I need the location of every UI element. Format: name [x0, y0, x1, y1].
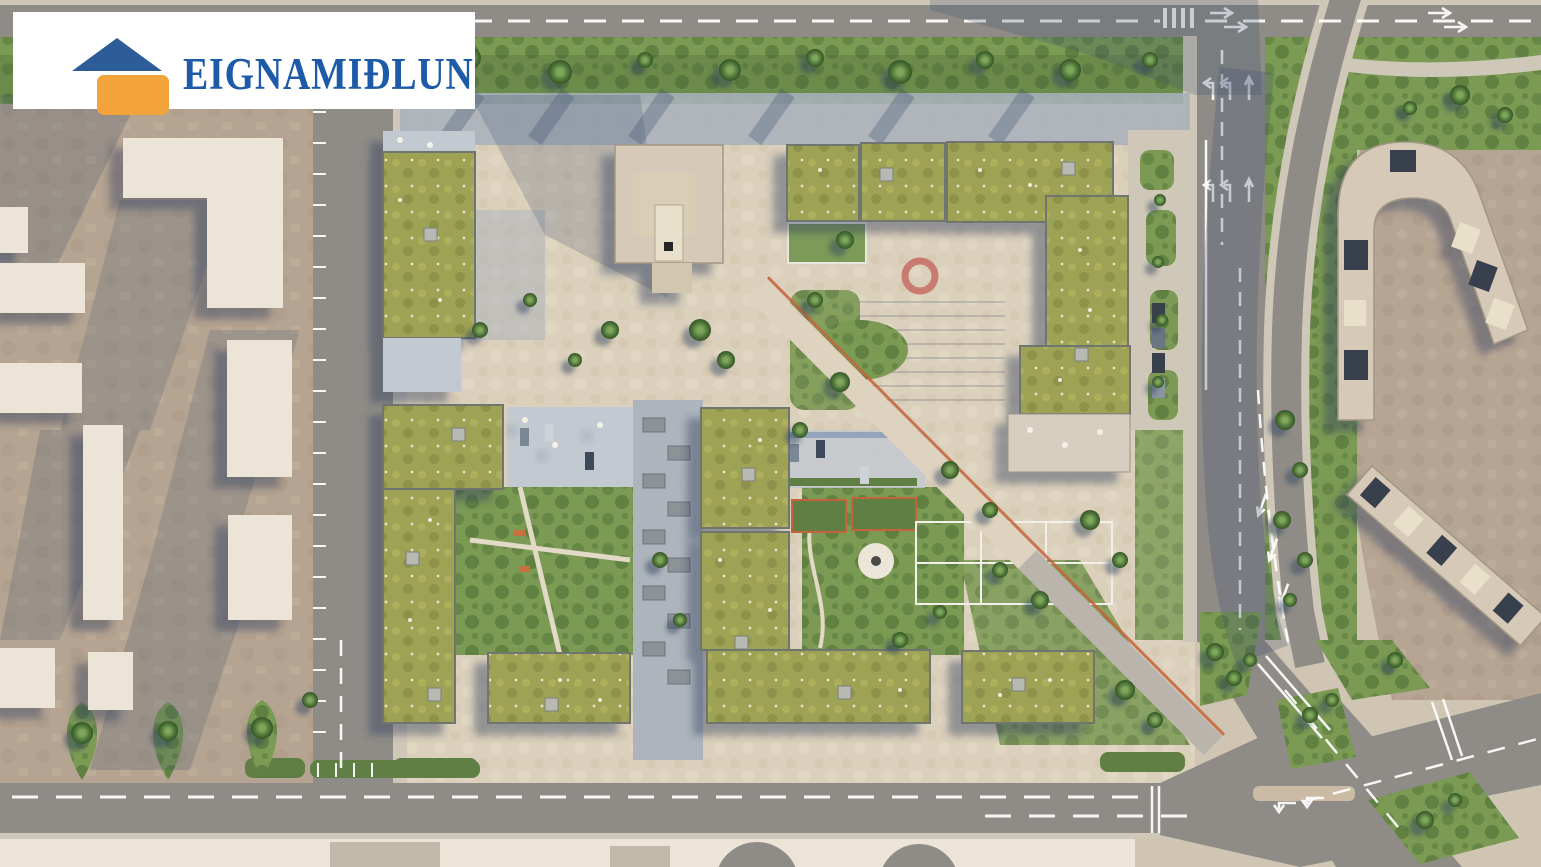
planter-box: [852, 498, 916, 530]
green-roof-building: [861, 143, 945, 221]
bench: [519, 566, 530, 572]
agency-name: EIGNAMIÐLUN: [183, 52, 474, 97]
green-roof-building: [701, 532, 789, 650]
green-roof-building: [488, 653, 630, 723]
green-roof-building: [383, 152, 475, 338]
sw-courtyard-lawn: [455, 487, 633, 655]
aerial-rendering: EIGNAMIÐLUN: [0, 0, 1541, 867]
green-roof-building: [383, 489, 455, 723]
bush-bed: [1140, 150, 1174, 190]
roof-terrace: [1008, 414, 1130, 472]
hedge-row: [1100, 752, 1185, 772]
south-road: [0, 783, 1260, 835]
roof-garden-terrace: [788, 223, 866, 263]
green-roof-building: [962, 651, 1094, 723]
agency-logo: EIGNAMIÐLUN: [13, 12, 475, 109]
house-body-square: [97, 75, 169, 115]
median-refuge: [1253, 786, 1355, 801]
green-roof-building: [1046, 196, 1128, 348]
roof-terrace: [383, 338, 461, 392]
east-edge-planting: [1135, 430, 1190, 640]
roof-vent: [664, 242, 673, 251]
house-icon: [71, 24, 171, 116]
site-plan-canvas: [0, 0, 1541, 867]
green-roof-building: [383, 405, 503, 489]
bench: [514, 530, 525, 536]
green-roof-building: [707, 650, 930, 723]
white-circle-center: [871, 556, 881, 566]
hedge-row: [777, 478, 917, 486]
south-edge-buildings: [0, 839, 1135, 867]
planter-box: [792, 500, 846, 532]
south-road-sidewalk: [0, 833, 1200, 839]
green-roof-building: [787, 145, 859, 221]
house-roof-triangle: [72, 38, 162, 71]
west-street: [313, 95, 393, 790]
parking-bay-ticks: [313, 112, 326, 732]
hedge-row: [393, 758, 478, 777]
